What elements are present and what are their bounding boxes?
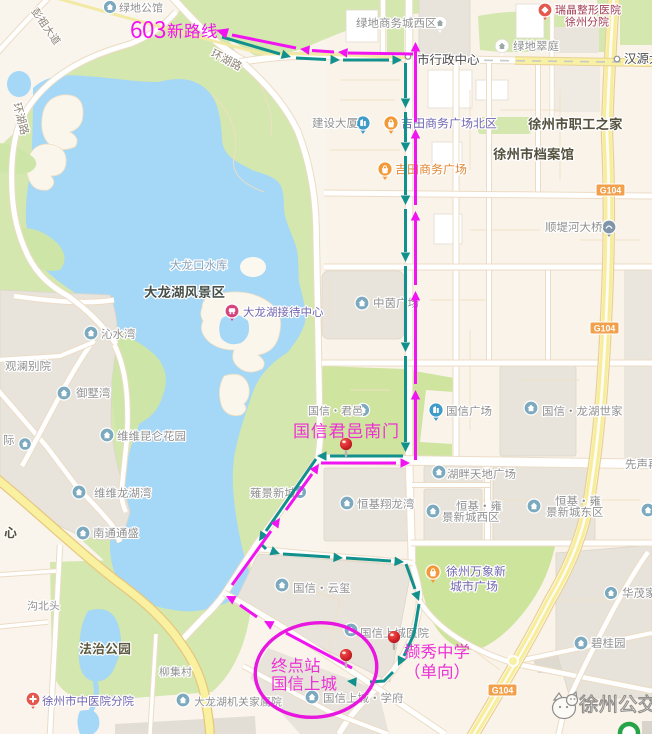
svg-text:G104: G104 [492, 685, 514, 695]
svg-text:G104: G104 [594, 323, 616, 333]
svg-text:G104: G104 [600, 185, 622, 195]
